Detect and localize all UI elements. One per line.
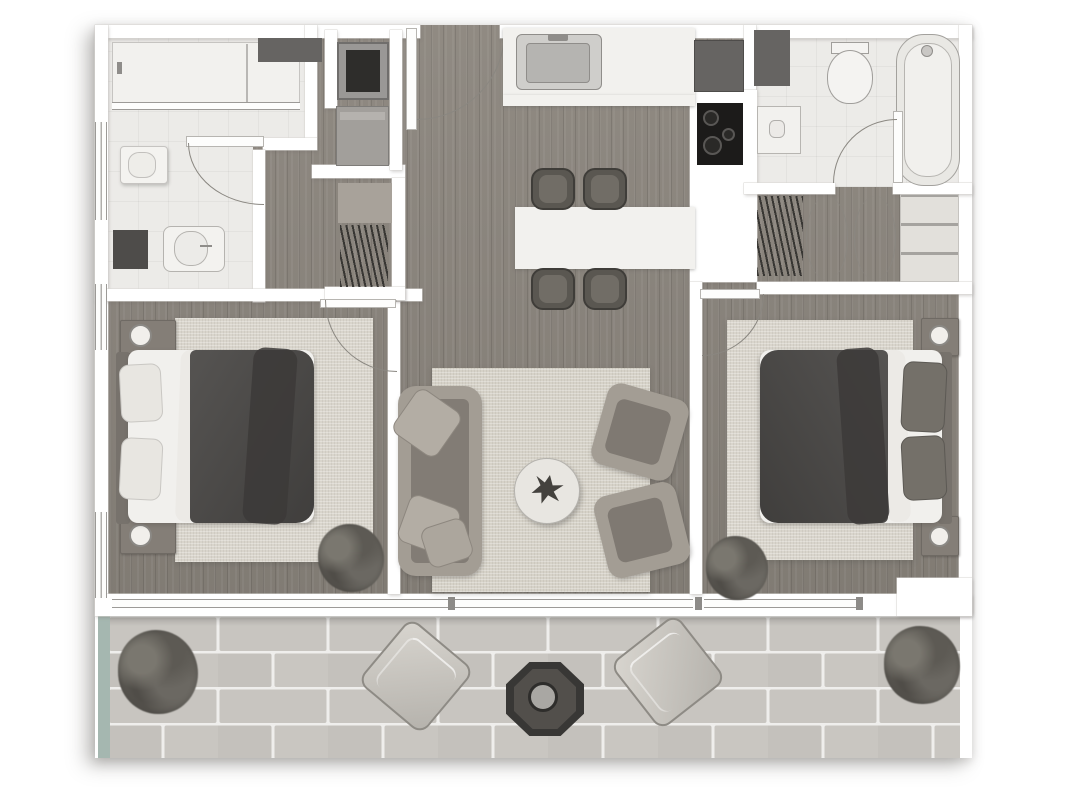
wall-bathroom-right-bottom-left (744, 183, 835, 194)
kitchen-counter-edge (503, 95, 695, 106)
sliding-glass-door-1 (112, 599, 448, 608)
bedroom-right-pillow-1 (900, 361, 948, 433)
cooktop-burner-2 (722, 128, 735, 141)
utility-shaft (754, 30, 790, 86)
bar-chair-seat (539, 175, 567, 203)
linen-shelves (900, 194, 959, 282)
bedroom-right-plant (706, 536, 768, 600)
wall-closet-left-right (392, 178, 405, 300)
window-mullion-2 (695, 597, 702, 610)
bifold-door-arc-4 (854, 196, 896, 280)
coffee-table-plant (524, 466, 569, 511)
bifold-door-arc-2 (806, 196, 848, 280)
floor-plan (0, 0, 1067, 800)
window-mullion-1 (448, 597, 455, 610)
wall-top-left (95, 25, 420, 38)
sliding-glass-door-3 (704, 599, 856, 608)
bar-chair-seat (591, 275, 619, 303)
bedroom-left-pillow-2 (118, 437, 163, 501)
refrigerator (694, 40, 744, 92)
bedroom-left-lamp-top (129, 324, 152, 347)
vanity-basin (128, 152, 156, 178)
wall-bathroom-left-stub (263, 138, 317, 150)
bedroom-right-lamp-bottom (929, 526, 950, 547)
bar-chair-seat (539, 275, 567, 303)
shower-divider (246, 44, 248, 102)
bedroom-right-pillow-2 (900, 435, 947, 501)
window-mullion-3 (856, 597, 863, 610)
bedroom-right-lamp-top (929, 325, 950, 346)
terrace-shrub-left (118, 630, 198, 714)
bar-chair-2 (583, 168, 627, 210)
toilet-right-bowl (827, 50, 873, 104)
wall-bedroom-left-top (95, 289, 325, 301)
closet-left-hangers (340, 225, 388, 287)
left-wall-window-2 (95, 284, 107, 350)
terrace-shrub-right (884, 626, 960, 704)
closet-right-hangers (757, 196, 803, 276)
shower-glass-screen (112, 102, 300, 110)
left-wall-window-3 (95, 512, 107, 598)
toilet-left-flush-mark (200, 245, 212, 247)
sliding-glass-door-2 (455, 599, 693, 608)
bathtub-basin (904, 43, 952, 177)
wall-corridor-bottom (757, 282, 972, 294)
washer-drum (346, 50, 380, 92)
bathtub-faucet (921, 45, 933, 57)
fire-pit-bowl (528, 682, 558, 712)
kitchen-sink-basin (526, 43, 590, 83)
lintel-cabinet (258, 38, 322, 62)
bar-chair-4 (583, 268, 627, 310)
cooktop-burner-1 (703, 110, 719, 126)
cooktop-burner-3 (703, 136, 722, 155)
wash-basin-right-bowl (769, 120, 785, 138)
shower-faucet (117, 62, 122, 74)
wall-laundry-left-stub (325, 30, 337, 108)
toilet-left-seat (174, 231, 208, 266)
wall-right (959, 25, 972, 612)
bedroom-left-lamp-bottom (129, 524, 152, 547)
bar-chair-seat (591, 175, 619, 203)
left-wall-window-1 (95, 122, 107, 220)
bar-chair-3 (531, 268, 575, 310)
closet-left-shelf (338, 183, 392, 223)
wall-laundry-right (390, 30, 402, 170)
laundry-bin (113, 230, 148, 269)
planter-edge (98, 616, 110, 758)
dryer-cabinet-top (340, 112, 385, 120)
bedroom-left-plant (318, 524, 384, 592)
terrace-top-shadow (108, 616, 960, 626)
island-counter (515, 207, 695, 269)
entry-door-leaf (406, 28, 417, 130)
bar-chair-1 (531, 168, 575, 210)
kitchen-faucet (548, 34, 568, 41)
bedroom-left-pillow-1 (119, 363, 164, 423)
wall-corner-bottom-right (897, 578, 972, 616)
wall-living-bedroom-right (690, 282, 702, 594)
